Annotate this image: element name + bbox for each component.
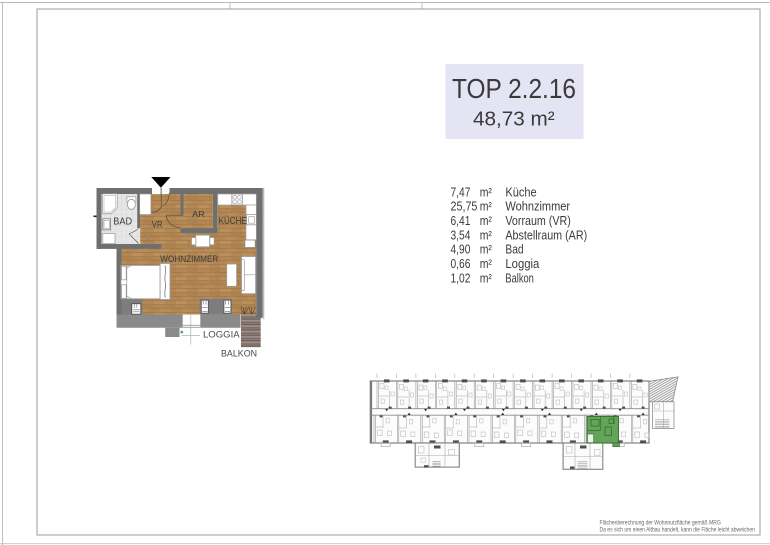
svg-text:1,02: 1,02 (451, 271, 471, 285)
svg-text:0,66: 0,66 (451, 257, 471, 271)
svg-text:6,41: 6,41 (451, 214, 471, 228)
svg-text:m²: m² (480, 200, 492, 214)
svg-text:Vorraum (VR): Vorraum (VR) (505, 214, 570, 228)
svg-text:BALKON: BALKON (221, 349, 257, 359)
svg-text:VR: VR (152, 219, 163, 229)
svg-text:25,75: 25,75 (451, 200, 478, 214)
svg-text:LOGGIA: LOGGIA (203, 329, 241, 339)
svg-text:KÜCHE: KÜCHE (219, 215, 247, 227)
svg-text:m²: m² (480, 257, 492, 271)
svg-text:Wohnzimmer: Wohnzimmer (505, 200, 570, 214)
svg-text:Balkon: Balkon (505, 271, 533, 285)
svg-text:Da es sich um einen Altbau han: Da es sich um einen Altbau handelt, kann… (600, 526, 756, 533)
svg-text:Bad: Bad (505, 243, 523, 257)
svg-text:m²: m² (480, 271, 492, 285)
svg-text:Abstellraum (AR): Abstellraum (AR) (505, 228, 587, 242)
svg-text:TOP 2.2.16: TOP 2.2.16 (452, 73, 576, 104)
svg-text:BAD: BAD (113, 216, 132, 228)
svg-text:4,90: 4,90 (451, 243, 471, 257)
svg-text:48,73 m²: 48,73 m² (473, 109, 555, 131)
svg-text:m²: m² (480, 214, 492, 228)
svg-text:m²: m² (480, 185, 492, 199)
svg-text:AR: AR (192, 210, 205, 219)
svg-text:7,47: 7,47 (451, 185, 471, 199)
svg-text:m²: m² (480, 243, 492, 257)
svg-text:WOHNZIMMER: WOHNZIMMER (160, 254, 218, 265)
svg-text:Loggia: Loggia (505, 257, 540, 271)
svg-text:Küche: Küche (505, 185, 536, 199)
svg-text:3,54: 3,54 (451, 228, 471, 242)
svg-text:m²: m² (480, 228, 492, 242)
